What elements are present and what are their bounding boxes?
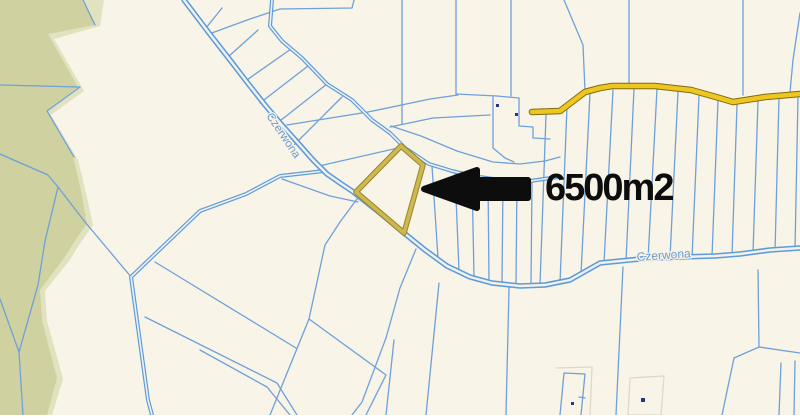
svg-text:6500m2: 6500m2 [545,167,673,209]
